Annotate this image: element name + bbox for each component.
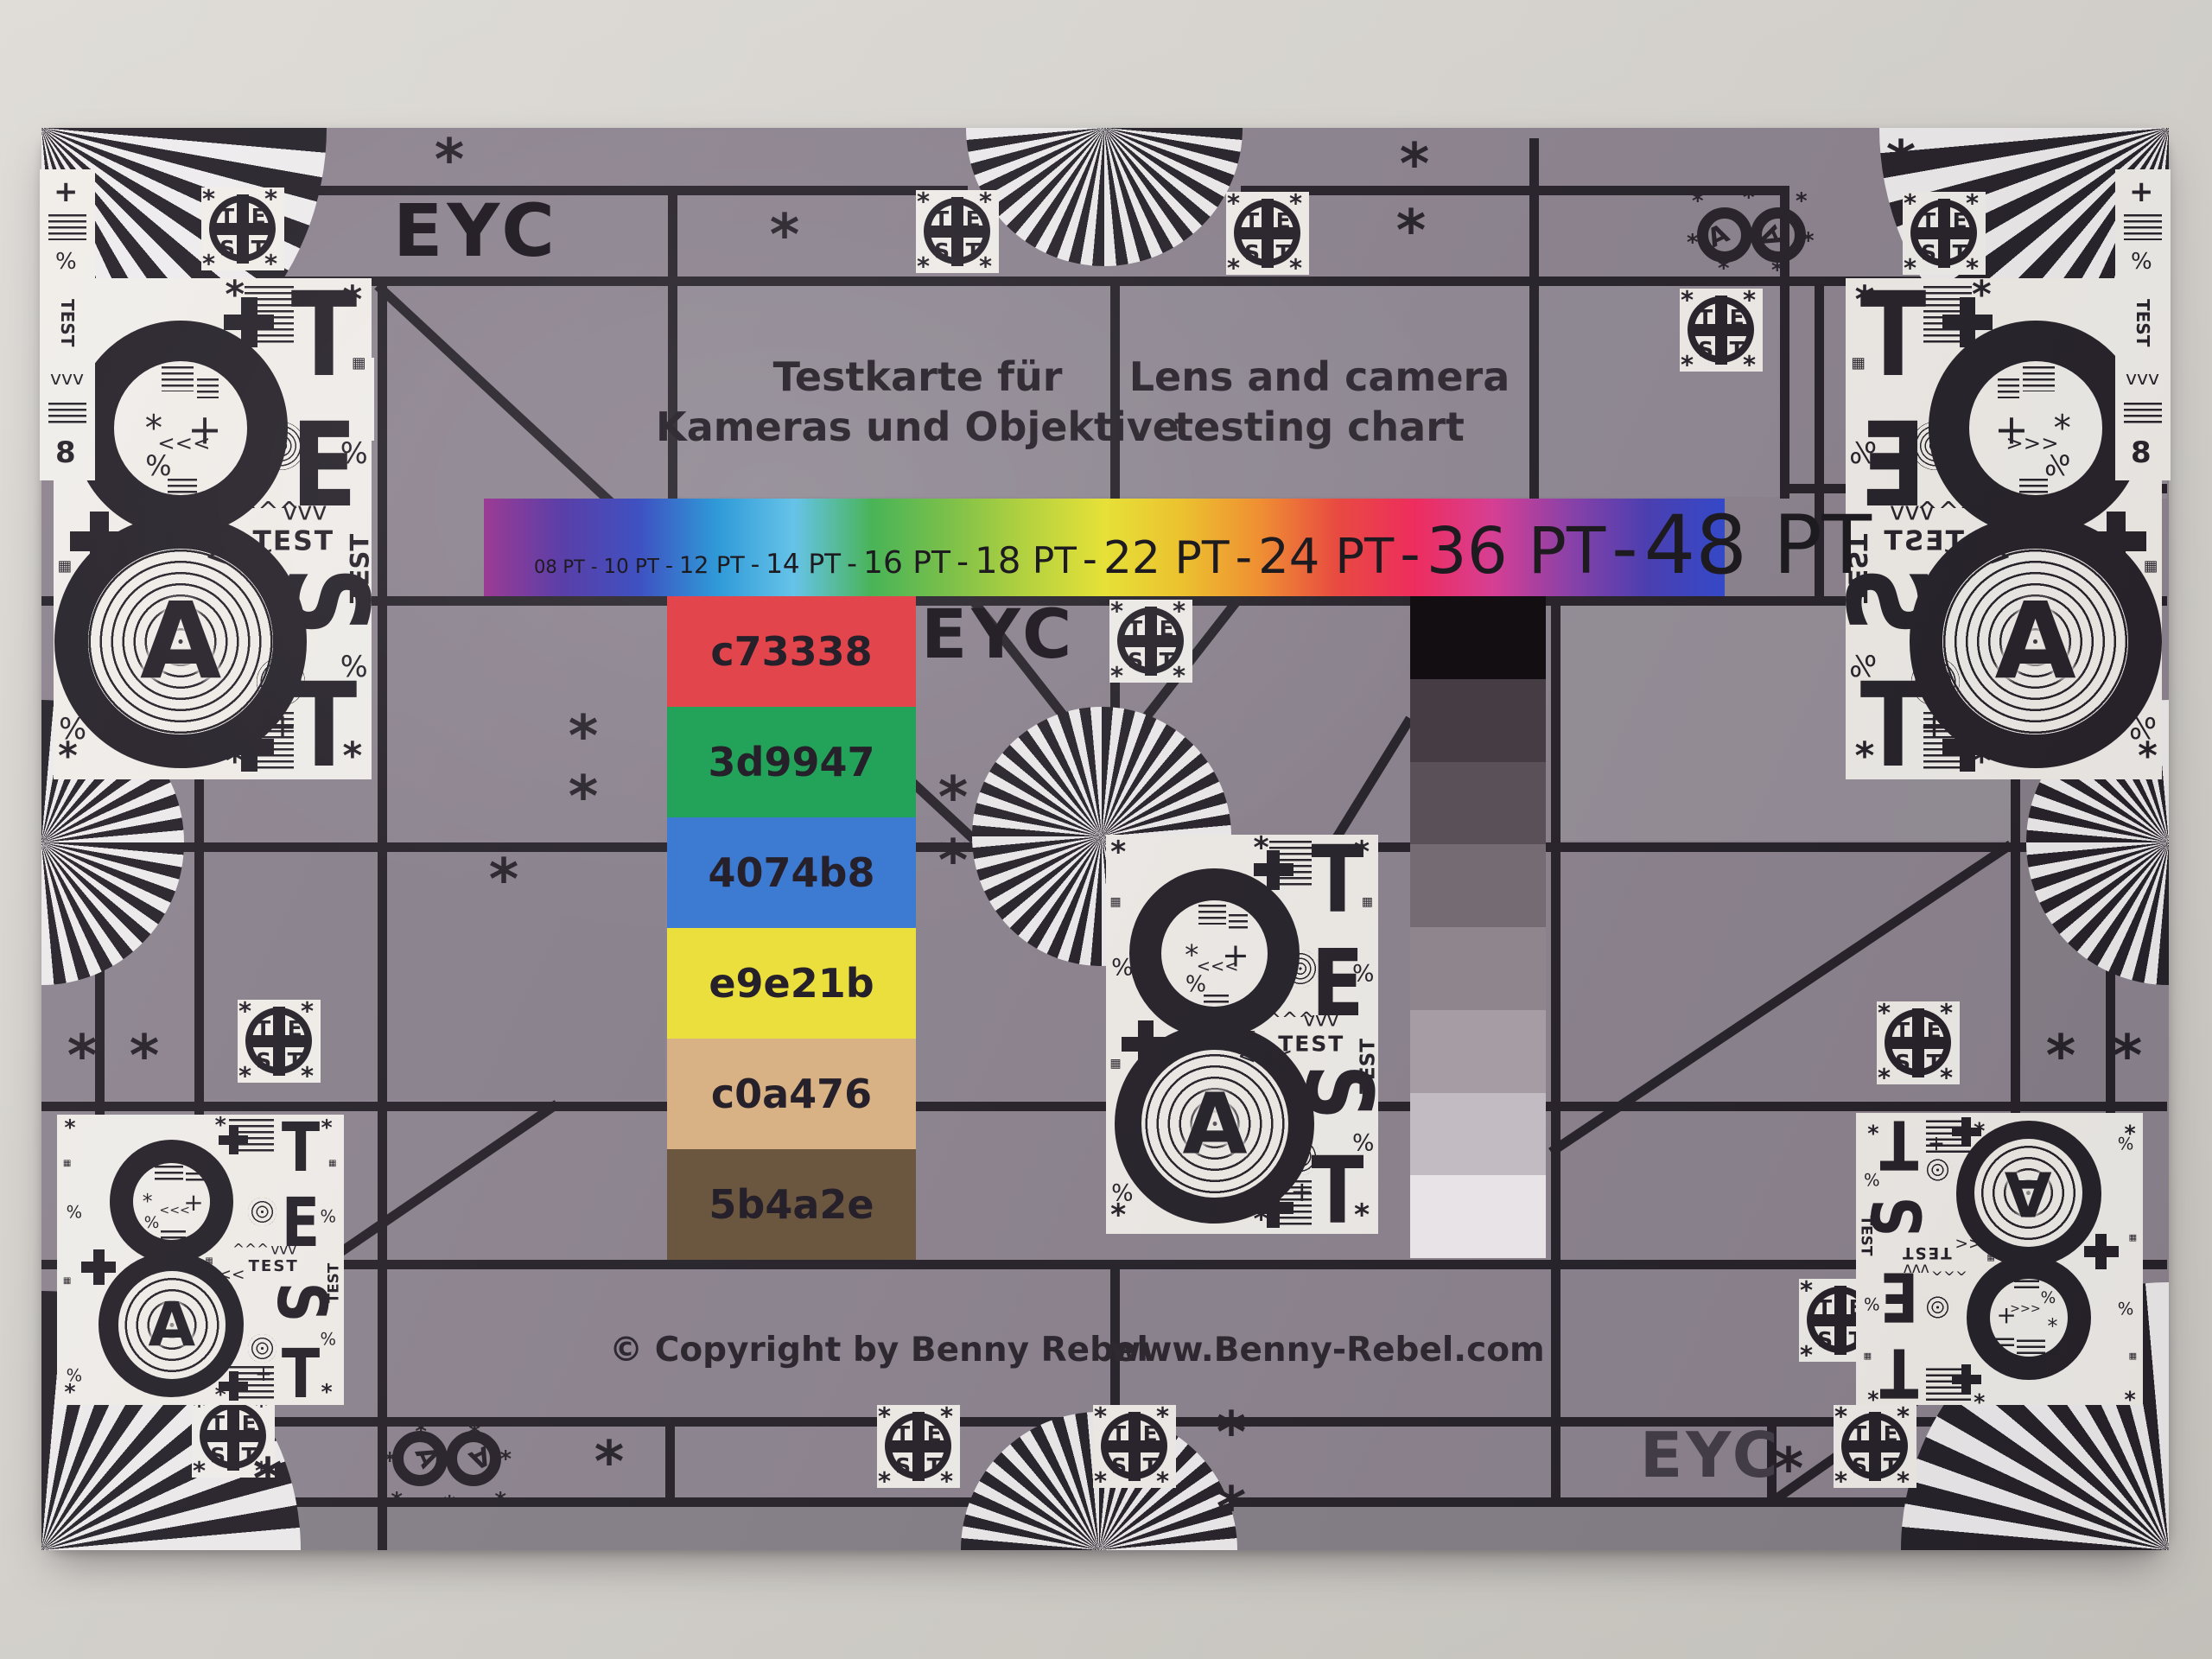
pt-label: 14 PT: [766, 549, 841, 580]
test-badge-cross-h: [1694, 324, 1748, 335]
plus-glyph: +: [188, 410, 222, 452]
concentric-target: [1281, 950, 1319, 988]
arrows-up-glyph: ^^^: [1931, 1262, 1967, 1276]
checker-glyph: ▦: [2144, 559, 2158, 574]
letter-a-target: A: [140, 589, 221, 695]
asterisk-icon: *: [1110, 837, 1126, 868]
color-patch-label: e9e21b: [709, 960, 874, 1007]
asterisk-glyph: *: [67, 1023, 98, 1090]
color-patch-tan: c0a476: [667, 1039, 916, 1149]
asterisk-glyph: *: [130, 1023, 160, 1090]
asterisk-icon: *: [1227, 188, 1240, 218]
asterisk-icon: *: [193, 1456, 206, 1485]
asterisk-icon: *: [1173, 661, 1185, 690]
checker-glyph: ▦: [352, 356, 365, 371]
grayscale-step: [1410, 1010, 1546, 1093]
asterisk-icon: *: [1878, 998, 1891, 1027]
asterisk-icon: *: [1692, 188, 1704, 214]
test-circle-badge: TEST****: [1226, 192, 1309, 275]
arrows-left-glyph: <<<: [1237, 1046, 1293, 1067]
hatch-lines: [245, 712, 294, 770]
percent-glyph: %: [340, 439, 368, 468]
hatch-lines: [1926, 1119, 1970, 1153]
arrows-down-glyph: vvv: [2126, 368, 2159, 390]
test-word-vertical: TEST: [327, 1263, 341, 1303]
checker-glyph: ▦: [1244, 1030, 1255, 1042]
asterisk-icon: *: [391, 1479, 403, 1505]
asterisk-icon: *: [1940, 1063, 1953, 1092]
test-badge-letter: S: [934, 238, 950, 264]
pt-label: 10 PT: [603, 556, 659, 578]
asterisk-glyph: *: [435, 127, 465, 194]
percent-glyph: %: [1352, 963, 1374, 986]
color-patch-label: 4074b8: [709, 849, 875, 896]
arrows-down-glyph: vvv: [1904, 1262, 1929, 1276]
asterisk-icon: *: [238, 996, 251, 1026]
arrows-down-glyph: vvv: [1890, 499, 1935, 524]
pt-label: 16 PT: [863, 545, 950, 581]
test-word-vertical: TEST: [1859, 1216, 1873, 1256]
asterisk-icon: *: [215, 1384, 226, 1405]
hatch-lines: [155, 1166, 183, 1180]
asterisk-glyph: *: [938, 765, 969, 831]
test-badge-letter: S: [1698, 337, 1713, 362]
plus-cross-h: [70, 531, 130, 550]
percent-glyph: %: [1111, 957, 1133, 980]
asterisk-icon: *: [979, 187, 992, 216]
color-patch-blue: 4074b8: [667, 817, 916, 928]
photo-of-test-chart: EYC EYC EYC Testkarte für Kameras und Ob…: [0, 0, 2212, 1659]
asterisk-icon: *: [499, 1438, 512, 1464]
test-badge-cross-h: [1891, 1037, 1945, 1048]
asterisk-glyph: *: [1400, 131, 1430, 198]
test-word-vertical: TEST: [1358, 1039, 1378, 1094]
hatch-lines: [1993, 1335, 2013, 1347]
asterisk-icon: *: [343, 282, 363, 320]
test-badge-cross-h: [215, 223, 270, 234]
asterisk-icon: *: [1681, 350, 1694, 379]
arrows-up-glyph: ^^^: [232, 1243, 269, 1257]
percent-glyph: %: [2118, 1299, 2134, 1316]
asterisk-icon: *: [301, 1061, 314, 1090]
asterisk-icon: *: [143, 1192, 153, 1212]
pt-separator: -: [1083, 536, 1097, 583]
percent-glyph: %: [1849, 652, 1877, 682]
asterisk-icon: *: [264, 184, 277, 213]
test-circle-badge: TEST****: [238, 1000, 321, 1083]
checker-glyph: ▦: [1863, 1351, 1872, 1359]
test-circle-badge: TEST****: [916, 190, 999, 273]
test-badge-letter: S: [1852, 1453, 1867, 1478]
asterisk-icon: *: [321, 1117, 332, 1139]
letter-a-target: A: [2005, 1162, 2052, 1224]
asterisk-icon: *: [878, 1402, 891, 1431]
asterisk-icon: *: [58, 738, 78, 776]
asterisk-icon: *: [321, 1381, 332, 1402]
asterisk-icon: *: [2124, 1381, 2135, 1402]
color-patch-green: 3d9947: [667, 707, 916, 817]
pt-separator: -: [1400, 522, 1420, 587]
color-patch-label: 3d9947: [709, 739, 875, 785]
test-badge-letter: S: [210, 1443, 226, 1468]
test-word-vertical: TEST: [348, 534, 372, 603]
pt-separator: -: [665, 553, 673, 578]
plus-glyph: +: [183, 1192, 203, 1216]
asterisk-icon: *: [1802, 228, 1815, 254]
plus-cross-h: [2084, 1246, 2120, 1257]
asterisk-glyph: *: [253, 1446, 283, 1513]
hatch-lines: [1923, 286, 1973, 344]
checker-glyph: ▦: [63, 1277, 72, 1286]
test-badge-cross-h: [1916, 227, 1971, 238]
hatch-lines: [197, 378, 219, 398]
test-circle-badge: TEST****: [1093, 1405, 1176, 1488]
pt-label: 22 PT: [1103, 532, 1230, 584]
asterisk-icon: *: [940, 1466, 953, 1496]
asterisk-icon: *: [494, 1479, 506, 1505]
hatch-lines: [2023, 366, 2055, 391]
hatch-lines: [1204, 995, 1228, 1013]
test-badge-letter: S: [1244, 240, 1260, 265]
test-badge-cross-h: [1107, 1440, 1161, 1452]
asterisk-icon: *: [1156, 1466, 1169, 1496]
grid-line-vertical: [1529, 138, 1539, 499]
micro-chart-strip: +%TESTvvv8: [40, 169, 95, 480]
concentric-target: [248, 1198, 276, 1225]
eyc-label-top-left: EYC: [393, 194, 559, 267]
grid-line-horizontal: [41, 1102, 2167, 1111]
letter-a-target: A: [148, 1294, 195, 1356]
test-badge-cross-h: [891, 1440, 945, 1452]
asterisk-icon: *: [215, 1115, 226, 1135]
asterisk-icon: *: [1156, 1402, 1169, 1431]
pt-label: 36 PT: [1427, 514, 1606, 588]
letter-a-target: A: [1182, 1082, 1247, 1166]
test-badge-letter: S: [1817, 1327, 1833, 1352]
hatch-lines: [229, 1366, 273, 1400]
test-word-vertical: TEST: [57, 299, 78, 346]
color-patch-yellow: e9e21b: [667, 928, 916, 1039]
plus-glyph: +: [1994, 410, 2029, 452]
test-badge-cross-h: [1240, 227, 1294, 238]
arrows-down-glyph: vvv: [50, 368, 84, 390]
color-patch-brown: 5b4a2e: [667, 1149, 916, 1260]
asterisk-icon: *: [384, 1440, 396, 1465]
checker-glyph: ▦: [1109, 1058, 1121, 1071]
asterisk-icon: *: [1972, 278, 1992, 315]
asterisk-icon: *: [1972, 743, 1992, 779]
asterisk-glyph: *: [1217, 1400, 1247, 1466]
hatch-lines: [2017, 1339, 2045, 1354]
eight-top-loop: [110, 1140, 233, 1263]
percent-glyph: %: [1352, 1133, 1374, 1156]
hatch-lines: [168, 479, 196, 501]
percent-glyph: %: [67, 1204, 83, 1220]
test-circle-badge: TEST****: [1109, 600, 1192, 683]
asterisk-icon: *: [1094, 1466, 1107, 1496]
asterisk-icon: *: [301, 996, 314, 1026]
asterisk-icon: *: [1940, 998, 1953, 1027]
asterisk-icon: *: [1743, 350, 1756, 379]
eight-glyph: 8: [55, 435, 76, 470]
hatch-lines: [2014, 1275, 2040, 1288]
concentric-target: [248, 1334, 276, 1362]
color-patch-red: c73338: [667, 596, 916, 707]
asterisk-icon: *: [1855, 282, 1875, 320]
plus-cross-h: [81, 1262, 116, 1273]
asterisk-icon: *: [1289, 253, 1302, 283]
asterisk-icon: *: [1855, 738, 1875, 776]
asterisk-icon: *: [1253, 835, 1268, 863]
eight-test-panel: *%<<<+ATESTTESTTEST^^^vvv<<<+%%%%******▦…: [1856, 1113, 2143, 1405]
asterisk-icon: *: [1354, 837, 1370, 868]
asterisk-glyph: *: [1396, 198, 1427, 264]
asterisk-icon: *: [1687, 230, 1699, 256]
checker-glyph: ▦: [1851, 356, 1865, 371]
pt-label: 48 PT: [1644, 499, 1872, 593]
percent-glyph: %: [2041, 1287, 2056, 1304]
hatch-lines: [245, 286, 294, 344]
percent-glyph: %: [1185, 974, 1206, 995]
hatch-lines: [1923, 712, 1973, 770]
asterisk-glyph: *: [2113, 1023, 2143, 1090]
asterisk-icon: *: [238, 1061, 251, 1090]
percent-glyph: %: [2044, 453, 2070, 480]
concentric-target: [257, 422, 305, 470]
percent-glyph: %: [1849, 439, 1877, 468]
asterisk-icon: *: [1800, 1275, 1813, 1305]
test-badge-cross-h: [1847, 1440, 1902, 1452]
pt-label: 24 PT: [1258, 529, 1394, 585]
pt-separator: -: [957, 543, 969, 582]
asterisk-glyph: *: [1217, 1475, 1247, 1541]
hatch-lines: [2124, 214, 2162, 240]
grid-line-vertical: [665, 1417, 675, 1497]
hatch-lines: [1926, 1367, 1970, 1401]
percent-glyph: %: [1864, 1294, 1880, 1312]
grayscale-step: [1410, 1093, 1546, 1176]
asterisk-icon: *: [1227, 253, 1240, 283]
hatch-lines: [48, 214, 86, 240]
checker-glyph: ▦: [1362, 897, 1373, 909]
hatch-lines: [1269, 841, 1312, 887]
asterisk-icon: *: [1771, 257, 1783, 283]
asterisk-glyph: *: [489, 847, 519, 913]
asterisk-icon: *: [1800, 1340, 1813, 1370]
percent-glyph: %: [144, 1216, 160, 1231]
test-word: TEST: [249, 1259, 299, 1274]
copyright-line: © Copyright by Benny Rebel: [609, 1331, 1148, 1370]
test-circle-badge: TEST****: [1903, 192, 1986, 275]
hatch-lines: [186, 1173, 206, 1184]
grid-line-vertical: [1551, 596, 1560, 1497]
asterisk-icon: *: [1974, 1113, 1985, 1135]
hatch-lines: [161, 1230, 187, 1243]
color-patch-label: c73338: [710, 628, 872, 675]
pt-separator: -: [1611, 505, 1637, 590]
test-badge-letter: S: [1895, 1050, 1910, 1075]
asterisk-glyph: *: [569, 764, 599, 830]
hatch-lines: [1998, 378, 2020, 398]
test-badge-cross-h: [206, 1430, 260, 1441]
asterisk-icon: *: [343, 738, 363, 776]
asterisk-icon: *: [1966, 188, 1979, 218]
asterisk-icon: *: [1110, 1201, 1126, 1231]
percent-glyph: %: [2131, 249, 2152, 275]
checker-glyph: ▦: [1986, 1253, 1995, 1262]
checker-glyph: ▦: [1987, 524, 2001, 538]
asterisk-icon: *: [1834, 1466, 1847, 1496]
checker-glyph: ▦: [63, 1160, 72, 1168]
asterisk-icon: *: [1110, 661, 1123, 690]
eight-a-decor-badge: AA*******: [1695, 195, 1808, 275]
concentric-target: [1911, 658, 1960, 706]
asterisk-icon: *: [1897, 1402, 1910, 1431]
asterisk-glyph: *: [770, 202, 800, 269]
asterisk-icon: *: [264, 249, 277, 278]
checker-glyph: ▦: [2129, 1351, 2138, 1359]
asterisk-glyph: *: [594, 1429, 625, 1496]
grayscale-step: [1410, 679, 1546, 762]
title-german: Testkarte für Kameras und Objektive: [656, 353, 1179, 453]
checker-glyph: ▦: [2129, 1233, 2138, 1242]
asterisk-icon: *: [225, 278, 245, 315]
asterisk-glyph: *: [2046, 1023, 2076, 1090]
asterisk-icon: *: [1681, 285, 1694, 315]
asterisk-icon: *: [1253, 1205, 1268, 1235]
test-badge-letter: S: [1128, 648, 1143, 673]
hatch-lines: [2124, 403, 2162, 425]
asterisk-icon: *: [1974, 1384, 1985, 1406]
grid-line-horizontal: [41, 1260, 2167, 1269]
asterisk-glyph: *: [1886, 129, 1916, 195]
rainbow-point-size-bar: 08 PT - 10 PT - 12 PT - 14 PT - 16 PT - …: [484, 499, 1725, 596]
color-patch-label: c0a476: [711, 1071, 872, 1117]
plus-cross-h: [1122, 1037, 1169, 1052]
pt-separator: -: [847, 546, 857, 580]
pt-label: 18 PT: [975, 539, 1077, 582]
pt-label: 08 PT: [534, 556, 585, 577]
test-vertical-letter: T: [1880, 1338, 1919, 1405]
concentric-target: [1923, 1294, 1951, 1321]
grayscale-step: [1410, 596, 1546, 679]
test-badge-cross-h: [930, 226, 984, 237]
asterisk-icon: *: [1289, 188, 1302, 218]
asterisk-icon: *: [1867, 1116, 1878, 1137]
micro-chart-strip: +%TESTvvv8: [2115, 169, 2171, 480]
grayscale-step: [1410, 927, 1546, 1010]
test-word: TEST: [1901, 1243, 1952, 1259]
arrows-left-glyph: <<<: [205, 543, 274, 570]
plus-glyph: +: [1222, 940, 1249, 973]
asterisk-icon: *: [1897, 1466, 1910, 1496]
asterisk-icon: *: [2124, 1116, 2135, 1137]
asterisk-icon: *: [2048, 1307, 2058, 1328]
asterisk-icon: *: [202, 184, 215, 213]
percent-glyph: %: [340, 652, 368, 682]
asterisk-icon: *: [1796, 188, 1808, 214]
asterisk-icon: *: [1878, 1063, 1891, 1092]
percent-glyph: %: [55, 249, 77, 275]
percent-glyph: %: [320, 1208, 336, 1224]
asterisk-icon: *: [1110, 596, 1123, 626]
plus-glyph: +: [1997, 1304, 2017, 1328]
concentric-target: [1923, 1156, 1951, 1184]
concentric-target: [257, 658, 305, 706]
asterisk-icon: *: [468, 1412, 480, 1438]
pt-separator: -: [751, 550, 760, 579]
eyc-label-center: EYC: [921, 601, 1076, 669]
asterisk-icon: *: [979, 251, 992, 281]
asterisk-icon: *: [1173, 596, 1185, 626]
test-circle-badge: TEST****: [1834, 1405, 1916, 1488]
asterisk-icon: *: [1834, 1402, 1847, 1431]
asterisk-icon: *: [443, 1483, 455, 1509]
asterisk-icon: *: [64, 1117, 75, 1139]
arrows-down-glyph: vvv: [270, 1243, 296, 1257]
asterisk-icon: *: [1743, 285, 1756, 315]
hatch-lines: [2019, 479, 2048, 501]
eyc-label-bottom-right: EYC: [1640, 1424, 1782, 1486]
hatch-lines: [162, 366, 194, 391]
test-circle-badge: TEST****: [1680, 289, 1763, 372]
pt-label: 12 PT: [679, 552, 745, 579]
checker-glyph: ▦: [58, 559, 72, 574]
pt-separator: -: [591, 556, 598, 577]
arrows-left-glyph: <<<: [1955, 1235, 1995, 1251]
grayscale-step: [1410, 762, 1546, 845]
website-line: www.Benny-Rebel.com: [1109, 1331, 1544, 1370]
color-patch-label: 5b4a2e: [709, 1181, 874, 1228]
asterisk-icon: *: [917, 251, 930, 281]
hatch-lines: [1198, 905, 1226, 925]
arrows-left-glyph: <<<: [205, 1268, 245, 1283]
plus-cross-h: [2086, 531, 2146, 550]
checker-glyph: ▦: [328, 1160, 337, 1168]
percent-glyph: %: [145, 453, 171, 480]
test-circle-badge: TEST****: [877, 1405, 960, 1488]
percent-glyph: %: [1864, 1170, 1880, 1187]
hatch-lines: [1269, 1180, 1312, 1226]
arrows-down-glyph: vvv: [1303, 1010, 1338, 1030]
hatch-lines: [229, 1119, 273, 1153]
eight-glyph: 8: [2131, 435, 2152, 470]
eight-a-decor-badge: AA*******: [391, 1419, 503, 1498]
test-badge-cross-h: [1123, 635, 1178, 646]
test-vertical-letter: T: [1880, 1113, 1919, 1178]
asterisk-icon: *: [1718, 256, 1730, 282]
test-word-vertical: TEST: [2133, 299, 2153, 346]
test-vertical-letter: T: [282, 1341, 320, 1405]
asterisk-icon: *: [1867, 1381, 1878, 1402]
title-english: Lens and camera testing chart: [1129, 353, 1510, 453]
asterisk-glyph: *: [938, 828, 969, 894]
grayscale-step: [1410, 1175, 1546, 1258]
asterisk-icon: *: [64, 1381, 75, 1402]
grid-line-vertical: [378, 276, 387, 1550]
asterisk-icon: *: [415, 1410, 427, 1436]
asterisk-icon: *: [1094, 1402, 1107, 1431]
grayscale-step: [1410, 844, 1546, 927]
concentric-target: [1911, 422, 1960, 470]
arrows-left-glyph: <<<: [1942, 543, 2012, 570]
asterisk-icon: *: [2138, 738, 2158, 776]
checker-glyph: ▦: [215, 524, 229, 538]
asterisk-icon: *: [917, 187, 930, 216]
asterisk-icon: *: [1354, 1201, 1370, 1231]
asterisk-icon: *: [1743, 185, 1755, 211]
hatch-lines: [1229, 914, 1248, 930]
